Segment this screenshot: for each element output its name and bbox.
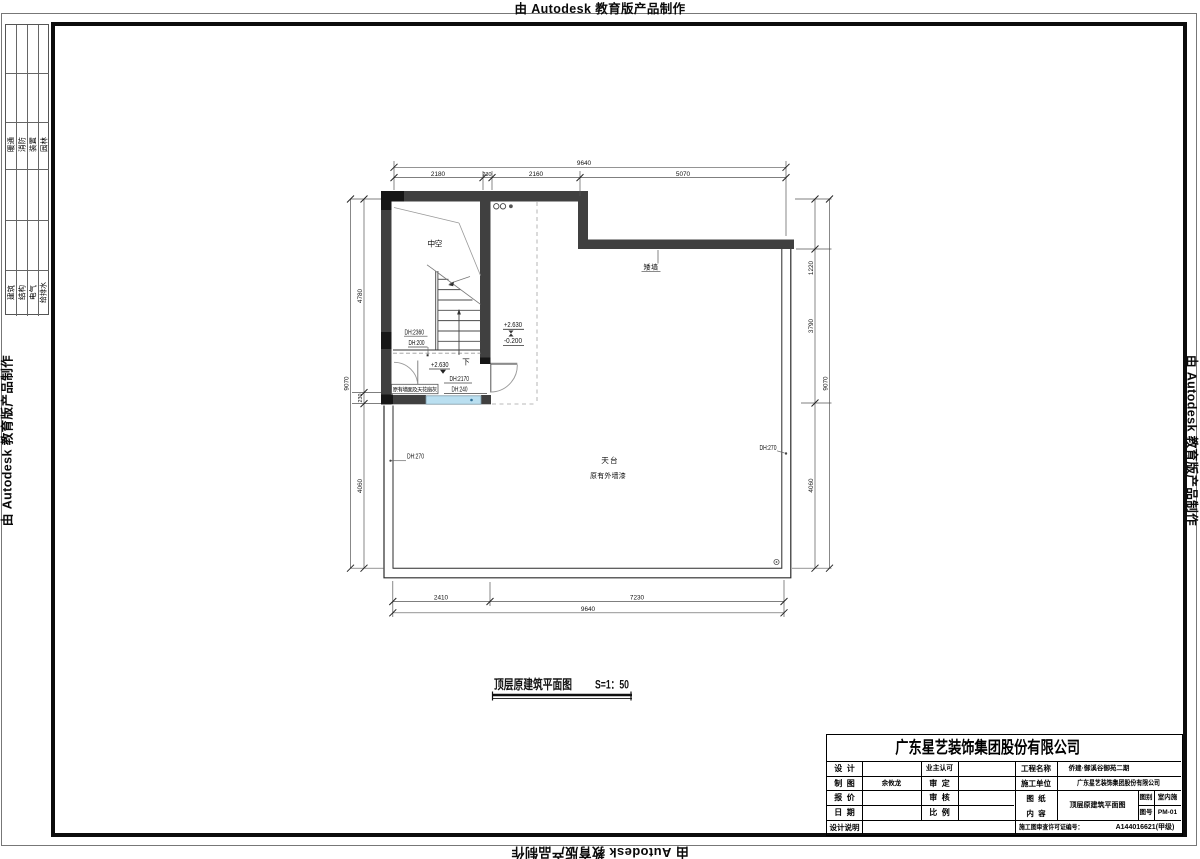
svg-text:DH:2170: DH:2170: [450, 376, 470, 383]
svg-text:4780: 4780: [357, 288, 364, 303]
svg-text:DH:2360: DH:2360: [405, 330, 425, 337]
svg-text:2410: 2410: [434, 595, 449, 602]
svg-text:中空: 中空: [427, 239, 442, 249]
svg-text:9640: 9640: [581, 606, 596, 613]
svg-text:DH:200: DH:200: [409, 340, 425, 347]
svg-text:1220: 1220: [808, 260, 815, 275]
svg-text:2160: 2160: [529, 171, 544, 178]
svg-text:顶层原建筑平面图: 顶层原建筑平面图: [494, 677, 572, 692]
svg-text:+2.630: +2.630: [431, 362, 449, 369]
svg-text:-0.200: -0.200: [504, 338, 522, 345]
svg-text:2180: 2180: [431, 171, 446, 178]
svg-text:矮墙: 矮墙: [644, 263, 659, 272]
svg-text:DH:240: DH:240: [452, 387, 468, 394]
svg-text:下: 下: [462, 358, 470, 367]
svg-text:230: 230: [358, 394, 364, 403]
svg-text:9070: 9070: [823, 376, 830, 391]
svg-text:DH:270: DH:270: [407, 453, 424, 460]
svg-text:7230: 7230: [630, 595, 645, 602]
svg-text:4060: 4060: [357, 478, 364, 493]
svg-text:天台: 天台: [601, 455, 619, 465]
svg-text:9070: 9070: [344, 376, 351, 391]
svg-text:+2.630: +2.630: [504, 322, 522, 329]
svg-text:原有外墙漆: 原有外墙漆: [590, 471, 626, 480]
svg-text:S=1：50: S=1：50: [595, 680, 629, 692]
svg-text:DH:270: DH:270: [760, 445, 777, 452]
svg-text:3790: 3790: [808, 318, 815, 333]
svg-text:4060: 4060: [808, 478, 815, 493]
svg-text:9640: 9640: [577, 160, 592, 167]
svg-text:原有墙面及天花扇灰: 原有墙面及天花扇灰: [393, 385, 438, 393]
svg-text:5070: 5070: [676, 171, 691, 178]
svg-text:230: 230: [483, 172, 492, 178]
